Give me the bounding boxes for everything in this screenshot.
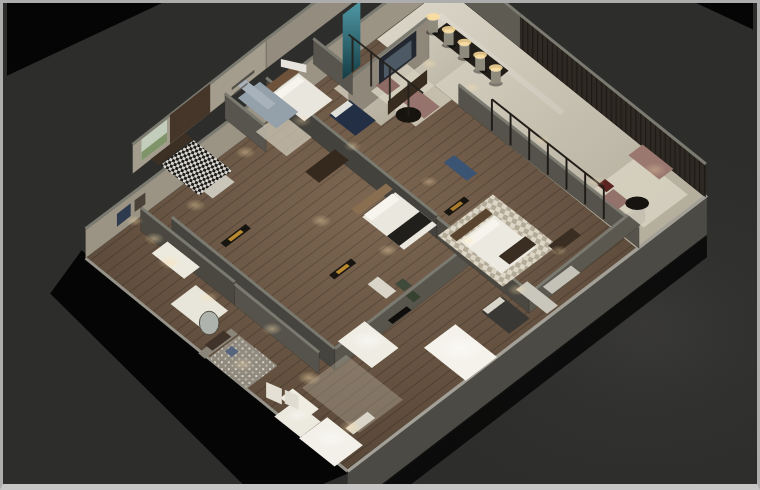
spot-light-glow-9 xyxy=(460,235,478,246)
vanity-mirror xyxy=(199,311,219,335)
spot-light-glow-16 xyxy=(298,371,322,385)
spot-light-glow-21 xyxy=(231,357,255,371)
pedestal-5-lamp-glow xyxy=(489,64,503,71)
spot-light-glow-6 xyxy=(311,215,332,227)
bed-glow-1 xyxy=(437,336,484,362)
spot-light-glow-8 xyxy=(420,176,438,187)
spot-light-glow-15 xyxy=(262,323,283,335)
pedestal-1-lamp-glow xyxy=(426,13,440,20)
spot-light-glow-2 xyxy=(185,199,206,211)
spot-light-glow-4 xyxy=(291,115,312,127)
spot-light-glow-5 xyxy=(344,141,362,152)
spot-light-glow-13 xyxy=(420,59,438,70)
spot-light-glow-18 xyxy=(198,291,219,303)
spot-light-glow-11 xyxy=(550,245,568,256)
spot-light-glow-20 xyxy=(158,255,182,269)
spot-light-glow-7 xyxy=(378,244,399,256)
spot-light-glow-22 xyxy=(533,135,551,146)
pedestal-3-lamp-glow xyxy=(458,39,472,46)
bed-glow-2 xyxy=(351,331,386,351)
spot-light-glow-1 xyxy=(144,232,165,244)
spot-light-glow-14 xyxy=(463,82,481,93)
pedestal-2-lamp-glow xyxy=(442,26,456,33)
spot-light-glow-10 xyxy=(507,283,528,295)
bed-glow-4 xyxy=(286,408,310,422)
spot-light-glow-12 xyxy=(587,176,605,187)
bed-glow-3 xyxy=(313,428,348,448)
render-canvas xyxy=(0,0,760,490)
spot-light-glow-3 xyxy=(235,146,256,158)
spot-light-glow-23 xyxy=(126,216,144,227)
spot-light-glow-19 xyxy=(643,163,667,177)
pedestal-4-lamp-glow xyxy=(473,52,487,59)
coffee-table-corridor xyxy=(625,196,649,210)
floorplan-render xyxy=(3,3,757,484)
